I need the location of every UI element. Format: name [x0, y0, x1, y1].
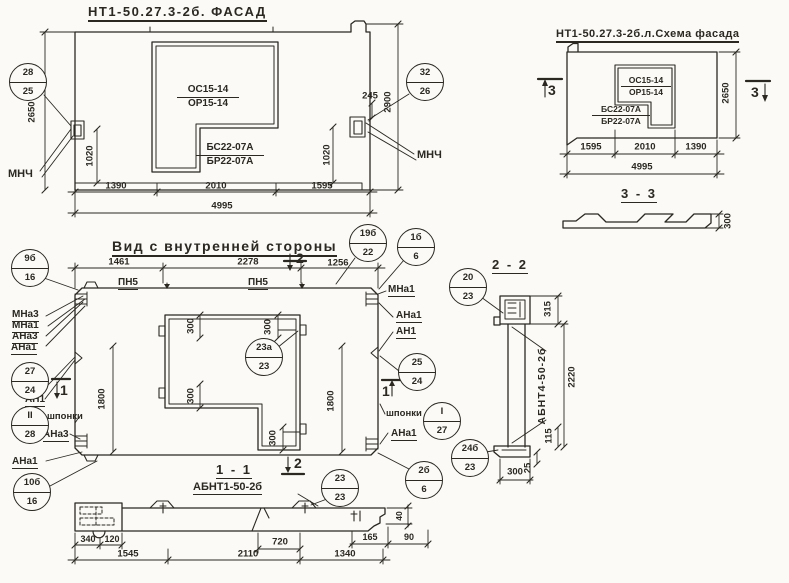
- anchor-label-ana1: АНа1: [11, 342, 37, 355]
- callout-II-28: II 28: [11, 406, 49, 444]
- anchor-label-mna1-right: МНа1: [388, 284, 415, 297]
- callout-28-25: 28 25: [9, 63, 47, 101]
- callout-bottom: 23: [450, 288, 486, 306]
- schema-title: НТ1-50.27.3-2б.л.Схема фасада: [556, 28, 739, 43]
- callout-10b-16: 10б 16: [13, 473, 51, 511]
- callout-bottom: 24: [399, 373, 435, 391]
- dim-2900: 2900: [383, 91, 394, 112]
- dim-165: 165: [362, 532, 377, 542]
- callout-bottom: 24: [12, 382, 48, 400]
- part-label-abnt1: АБНТ1-50-2б: [193, 481, 262, 495]
- section-1-1-title: 1 - 1: [216, 462, 252, 479]
- dim-2010: 2010: [205, 181, 226, 192]
- dim-300-2: 300: [263, 319, 274, 335]
- callout-19b-22: 19б 22: [349, 224, 387, 262]
- blueprint-page: НТ1-50.27.3-2б. ФАСАД ОС15-14 ОР15-14 БС…: [0, 0, 789, 583]
- anchor-label-mnch-right: МНЧ: [417, 149, 442, 162]
- dim-2650: 2650: [721, 82, 732, 103]
- anchor-label-mnch-left: МНЧ: [8, 168, 33, 181]
- part-label-abnt4: АБНТ4-50-2б: [536, 348, 548, 425]
- callout-top: 28: [10, 64, 46, 83]
- opening-mark-numerator: БС22-07А: [196, 142, 264, 156]
- section-3-3-title: 3 - 3: [621, 186, 657, 203]
- callout-bottom: 23: [246, 358, 282, 376]
- dim-1461: 1461: [108, 257, 129, 268]
- callout-top: 19б: [350, 225, 386, 244]
- dim-1800-right: 1800: [326, 390, 337, 411]
- dim-1020-right: 1020: [322, 144, 333, 165]
- dim-1545: 1545: [117, 549, 138, 560]
- opening-mark-denominator: ОР15-14: [177, 98, 239, 111]
- facade-title: НТ1-50.27.3-2б. ФАСАД: [88, 4, 267, 22]
- callout-top: 23: [322, 470, 358, 489]
- callout-top: II: [12, 407, 48, 426]
- callout-I-27: I 27: [423, 402, 461, 440]
- opening-mark-numerator: ОС15-14: [621, 75, 671, 87]
- callout-27-24: 27 24: [11, 362, 49, 400]
- anchor-label-ana1-right: АНа1: [396, 310, 422, 323]
- lifting-loop-label-left: ПН5: [118, 277, 138, 290]
- callout-bottom: 23: [322, 489, 358, 507]
- dim-120: 120: [104, 534, 119, 544]
- dim-300-3: 300: [186, 388, 197, 404]
- opening-mark-denominator: БР22-07А: [196, 156, 264, 169]
- lifting-loop-label-right: ПН5: [248, 277, 268, 290]
- dim-2278: 2278: [237, 257, 258, 268]
- callout-top: I: [424, 403, 460, 422]
- dim-1390: 1390: [685, 142, 706, 153]
- dim-1800-left: 1800: [97, 388, 108, 409]
- dim-1595: 1595: [311, 181, 332, 192]
- section-mark-1-right: 1: [382, 383, 390, 399]
- anchor-label-ana1-bottom: АНа1: [12, 456, 38, 469]
- dim-115: 115: [544, 428, 555, 443]
- dim-4995: 4995: [211, 201, 232, 212]
- callout-top: 23а: [246, 339, 282, 358]
- section-mark-3-right: 3: [751, 84, 759, 100]
- callout-bottom: 16: [12, 269, 48, 287]
- callout-top: 1б: [398, 229, 434, 248]
- callout-top: 9б: [12, 250, 48, 269]
- dim-245: 245: [362, 91, 378, 102]
- section-mark-1-left: 1: [60, 382, 68, 398]
- section-2-2-title: 2 - 2: [492, 257, 528, 274]
- callout-20-23: 20 23: [449, 268, 487, 306]
- dim-300-width: 300: [507, 467, 523, 478]
- callout-top: 27: [12, 363, 48, 382]
- keyway-label-right: шпонки: [386, 408, 422, 420]
- dim-300-4: 300: [268, 430, 279, 446]
- dim-40: 40: [394, 511, 404, 520]
- callout-9b-16: 9б 16: [11, 249, 49, 287]
- dim-1390: 1390: [105, 181, 126, 192]
- callout-23a-23: 23а 23: [245, 338, 283, 376]
- callout-bottom: 6: [398, 248, 434, 266]
- callout-bottom: 27: [424, 422, 460, 440]
- dim-90: 90: [404, 532, 414, 542]
- dim-1595: 1595: [580, 142, 601, 153]
- callout-bottom: 22: [350, 244, 386, 262]
- section-mark-2-bottom: 2: [294, 455, 302, 471]
- dim-340: 340: [80, 534, 95, 544]
- callout-top: 24б: [452, 440, 488, 459]
- dim-2010: 2010: [634, 142, 655, 153]
- callout-top: 20: [450, 269, 486, 288]
- dim-25: 25: [523, 463, 534, 474]
- schema-window-mark-bottom: БС22-07А БР22-07А: [592, 104, 650, 126]
- dim-1256: 1256: [327, 258, 348, 269]
- callout-24b-23: 24б 23: [451, 439, 489, 477]
- dim-2110: 2110: [238, 549, 259, 560]
- anchor-label-an1-right: АН1: [396, 326, 416, 339]
- callout-top: 25: [399, 354, 435, 373]
- callout-top: 32: [407, 64, 443, 83]
- section-mark-3-left: 3: [548, 82, 556, 98]
- callout-bottom: 23: [452, 459, 488, 477]
- opening-mark-denominator: ОР15-14: [621, 87, 671, 98]
- facade-window-mark-top: ОС15-14 ОР15-14: [177, 84, 239, 110]
- callout-1b-6: 1б 6: [397, 228, 435, 266]
- callout-bottom: 25: [10, 83, 46, 101]
- dim-300-1: 300: [186, 318, 197, 334]
- schema-window-mark-top: ОС15-14 ОР15-14: [621, 75, 671, 97]
- opening-mark-denominator: БР22-07А: [592, 116, 650, 127]
- section-mark-2-top: 2: [296, 250, 304, 266]
- facade-window-mark-bottom: БС22-07А БР22-07А: [196, 142, 264, 168]
- callout-23-23: 23 23: [321, 469, 359, 507]
- keyway-label-left: шпонки: [47, 411, 83, 423]
- callout-32-26: 32 26: [406, 63, 444, 101]
- opening-mark-numerator: БС22-07А: [592, 104, 650, 116]
- dim-2220: 2220: [567, 366, 578, 387]
- callout-top: 2б: [406, 462, 442, 481]
- dim-315: 315: [543, 301, 554, 317]
- dim-720: 720: [272, 537, 288, 548]
- callout-bottom: 16: [14, 493, 50, 511]
- dim-1340: 1340: [334, 549, 355, 560]
- anchor-label-ana1-right-bottom: АНа1: [391, 428, 417, 441]
- callout-bottom: 28: [12, 426, 48, 444]
- callout-2b-6: 2б 6: [405, 461, 443, 499]
- dim-300-thickness: 300: [723, 213, 734, 229]
- dim-4995: 4995: [631, 162, 652, 173]
- opening-mark-numerator: ОС15-14: [177, 84, 239, 98]
- callout-bottom: 6: [406, 481, 442, 499]
- callout-top: 10б: [14, 474, 50, 493]
- dim-2650: 2650: [27, 101, 38, 122]
- callout-25-24: 25 24: [398, 353, 436, 391]
- dim-1020-left: 1020: [85, 145, 96, 166]
- callout-bottom: 26: [407, 83, 443, 101]
